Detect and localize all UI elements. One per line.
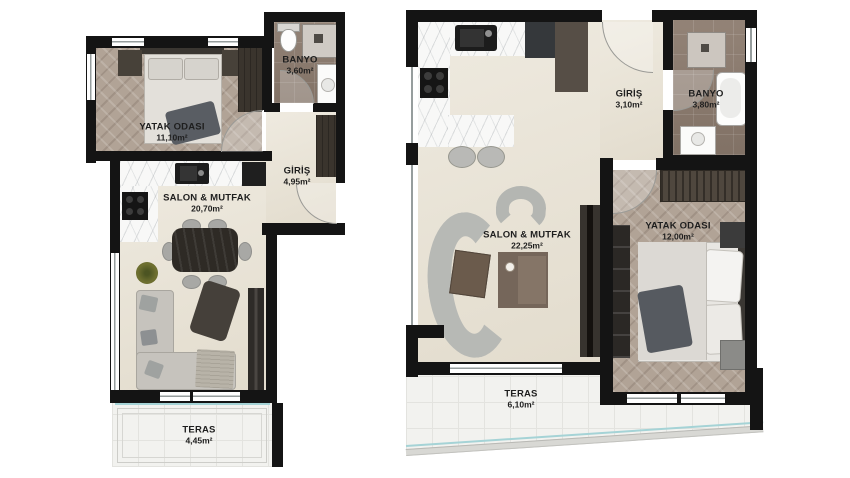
wall bbox=[406, 143, 418, 165]
wall bbox=[656, 158, 750, 170]
window bbox=[111, 253, 119, 390]
right-kitchen-faucet bbox=[485, 30, 492, 37]
left-kitchen-sink-basin bbox=[180, 166, 197, 181]
left-sofa-pillow-1 bbox=[139, 294, 159, 312]
right-wardrobe bbox=[660, 170, 747, 202]
room-label-left-bedroom: YATAK ODASI 11,10m² bbox=[139, 123, 204, 144]
terrace-door-window bbox=[160, 392, 190, 401]
terrace-door-window bbox=[627, 394, 677, 403]
right-kitchen-tall-cabinet bbox=[555, 22, 588, 92]
wall bbox=[262, 223, 345, 235]
right-rug-inner bbox=[518, 256, 546, 304]
wall bbox=[663, 110, 673, 165]
left-entrance-cabinet bbox=[316, 115, 336, 177]
room-label-right-bedroom: YATAK ODASI 12,00m² bbox=[645, 222, 710, 243]
room-area: 3,60m² bbox=[282, 67, 317, 77]
right-bedroom-wall-unit bbox=[613, 225, 630, 358]
wall bbox=[406, 10, 418, 67]
left-shower-drain bbox=[314, 34, 323, 43]
right-bedroom-dresser bbox=[720, 222, 746, 248]
window bbox=[208, 38, 238, 46]
window bbox=[112, 38, 144, 46]
left-toilet bbox=[280, 29, 297, 52]
dining-chair bbox=[182, 275, 201, 289]
right-bath-sink-basin bbox=[691, 132, 705, 146]
room-label-left-living: SALON & MUTFAK 20,70m² bbox=[163, 194, 251, 215]
right-coffee-cup bbox=[505, 262, 515, 272]
left-kitchen-cabinet bbox=[242, 162, 266, 186]
room-label-right-living: SALON & MUTFAK 22,25m² bbox=[483, 231, 571, 252]
right-cooktop-burner-1 bbox=[424, 72, 432, 80]
room-area: 6,10m² bbox=[504, 401, 537, 411]
wall bbox=[266, 235, 277, 403]
left-cooktop-burner-2 bbox=[137, 196, 144, 203]
left-cooktop-burner-3 bbox=[126, 208, 133, 215]
left-bedroom-wardrobe bbox=[238, 48, 262, 112]
room-label-left-entrance: GİRİŞ 4,95m² bbox=[284, 167, 311, 188]
window bbox=[407, 165, 417, 325]
left-dining-table bbox=[172, 228, 238, 272]
wall bbox=[406, 325, 444, 338]
right-shower-drain bbox=[701, 44, 709, 52]
left-sofa-pillow-2 bbox=[140, 329, 158, 346]
room-label-right-terrace: TERAS 6,10m² bbox=[504, 390, 537, 411]
wall bbox=[86, 151, 272, 161]
bar-stool bbox=[477, 146, 505, 168]
left-bath-sink-basin bbox=[321, 78, 335, 92]
room-label-left-bathroom: BANYO 3,60m² bbox=[282, 56, 317, 77]
room-area: 20,70m² bbox=[163, 205, 251, 215]
dining-chair bbox=[238, 242, 252, 261]
left-plant bbox=[136, 262, 158, 284]
left-nightstand-left bbox=[118, 50, 142, 76]
floorplan-canvas: YATAK ODASI 11,10m² BANYO 3,60m² GİRİŞ 4… bbox=[0, 0, 850, 478]
left-terrace-railing-line bbox=[115, 403, 270, 405]
right-cooktop-burner-3 bbox=[424, 85, 432, 93]
wall bbox=[264, 12, 345, 22]
wall bbox=[336, 12, 345, 183]
right-bed-pillow-1 bbox=[702, 249, 744, 304]
right-cooktop-burner-2 bbox=[436, 72, 444, 80]
right-tv-unit bbox=[580, 205, 600, 357]
left-tv-unit bbox=[248, 288, 264, 390]
room-area: 4,45m² bbox=[182, 437, 215, 447]
terrace-door-window bbox=[450, 364, 562, 373]
terrace-door-window bbox=[681, 394, 725, 403]
room-label-right-entrance: GİRİŞ 3,10m² bbox=[616, 90, 643, 111]
right-kitchen-island bbox=[448, 115, 514, 147]
right-kitchen-sink-basin bbox=[460, 29, 484, 47]
left-bed-pillow-2 bbox=[184, 58, 219, 80]
right-kitchen-flat-cabinet bbox=[525, 22, 555, 58]
wall bbox=[262, 48, 272, 110]
terrace-door-window bbox=[193, 392, 240, 401]
wall bbox=[600, 158, 613, 170]
room-area: 3,10m² bbox=[616, 101, 643, 111]
left-kitchen-faucet bbox=[198, 170, 204, 176]
left-sofa-throw bbox=[195, 349, 235, 389]
room-label-right-bathroom: BANYO 3,80m² bbox=[688, 90, 723, 111]
window bbox=[746, 28, 756, 62]
room-area: 22,25m² bbox=[483, 242, 571, 252]
right-cooktop-burner-4 bbox=[436, 85, 444, 93]
window bbox=[87, 54, 95, 100]
bar-stool bbox=[448, 146, 476, 168]
room-area: 11,10m² bbox=[139, 134, 204, 144]
window bbox=[407, 67, 417, 143]
room-area: 4,95m² bbox=[284, 178, 311, 188]
wall bbox=[666, 10, 750, 20]
wall bbox=[406, 10, 602, 22]
wall bbox=[272, 403, 283, 467]
room-label-left-terrace: TERAS 4,45m² bbox=[182, 426, 215, 447]
left-cooktop-burner-1 bbox=[126, 196, 133, 203]
left-cooktop-burner-4 bbox=[137, 208, 144, 215]
right-sofa-side-table bbox=[449, 250, 491, 299]
room-area: 3,80m² bbox=[688, 101, 723, 111]
wall bbox=[663, 10, 673, 70]
wall bbox=[313, 103, 345, 112]
room-area: 12,00m² bbox=[645, 233, 710, 243]
left-bed-pillow-1 bbox=[148, 58, 183, 80]
